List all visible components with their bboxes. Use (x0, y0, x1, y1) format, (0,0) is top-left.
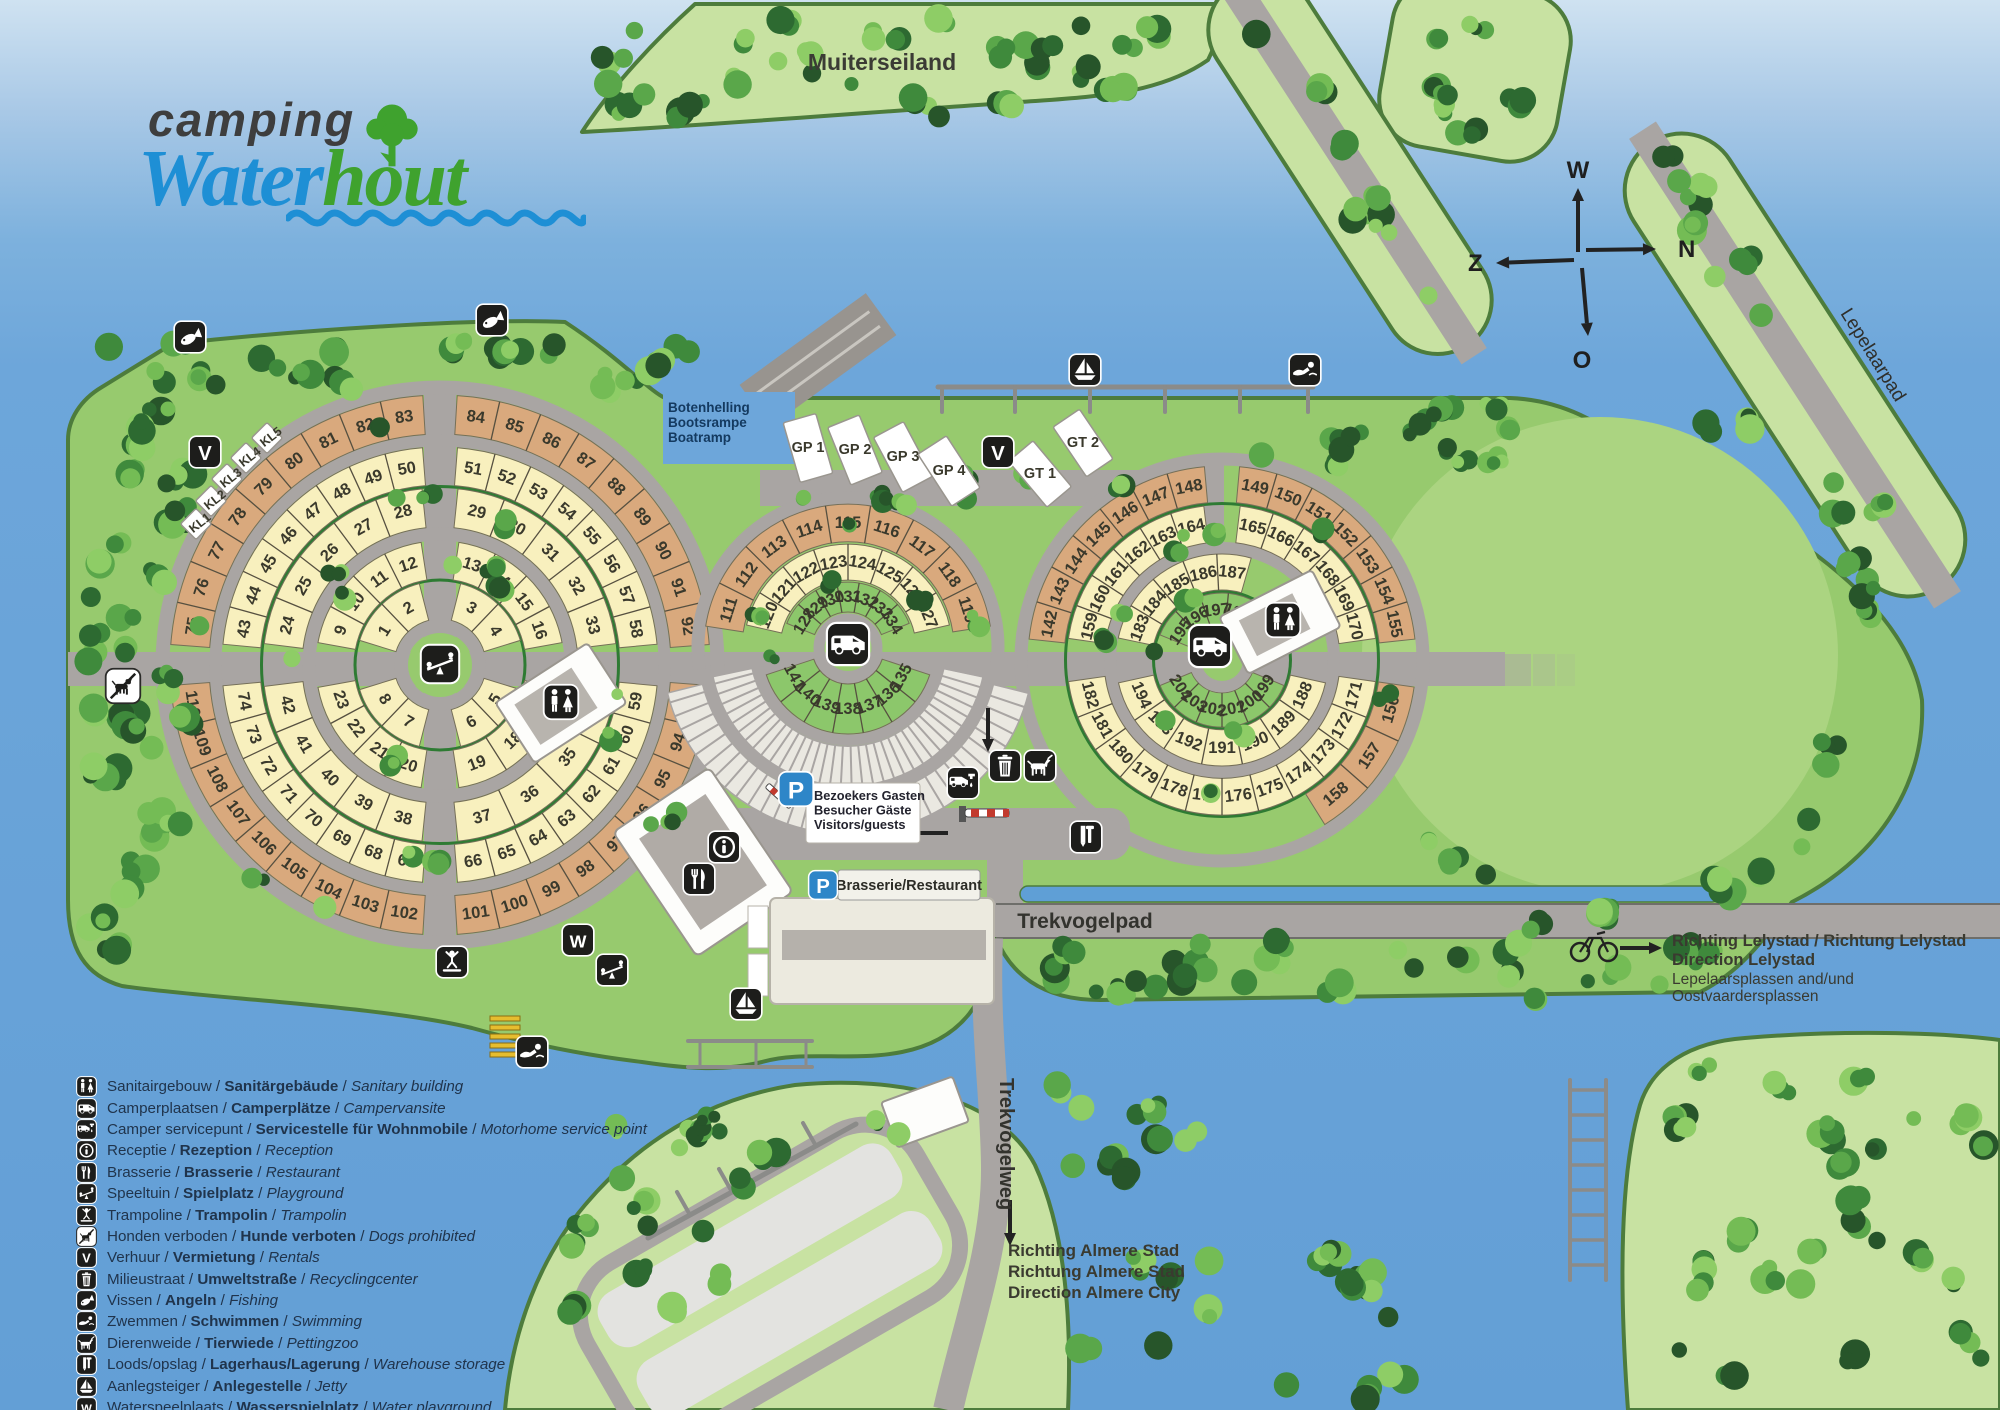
dining-icon (76, 1162, 97, 1183)
trash-icon (989, 750, 1021, 782)
brasserie-sign: Brasserie/Restaurant (836, 870, 982, 900)
svg-text:V: V (198, 442, 212, 465)
pitch-number: 43 (234, 618, 255, 639)
sailboat-icon (1069, 354, 1101, 386)
trampoline-icon (436, 946, 468, 978)
svg-text:Besucher Gäste: Besucher Gäste (814, 803, 911, 818)
svg-text:W: W (81, 1403, 92, 1410)
trampoline-icon (76, 1205, 97, 1226)
saw-icon (76, 1354, 97, 1375)
brasserie-building (748, 898, 994, 1004)
legend-item: V Verhuur / Vermietung / Rentals (76, 1247, 776, 1268)
legend-item: Zwemmen / Schwimmen / Swimming (76, 1311, 776, 1332)
label-trekvogelpad: Trekvogelpad (1017, 910, 1152, 933)
legend-item: Dierenweide / Tierwiede / Pettingzoo (76, 1333, 776, 1354)
pitch-number: 176 (1223, 785, 1252, 806)
legend-item-label: Dierenweide / Tierwiede / Pettingzoo (107, 1335, 358, 1352)
pitch-number: 187 (1217, 562, 1246, 583)
pitch-number: 51 (463, 458, 484, 479)
restroom-icon (1266, 603, 1301, 638)
svg-text:GT 1: GT 1 (1024, 466, 1056, 482)
svg-text:W: W (570, 931, 587, 951)
parking-p-icon: P (779, 772, 814, 807)
svg-text:Lepelaarsplassen and/und: Lepelaarsplassen and/und (1672, 971, 1854, 988)
dogs-prohibited-icon (106, 669, 141, 704)
legend-item: Camper servicepunt / Servicestelle für W… (76, 1119, 776, 1140)
legend-item-label: Honden verboden / Hunde verboten / Dogs … (107, 1228, 475, 1245)
pitch-number: 191 (1208, 739, 1236, 757)
camper-icon (1189, 625, 1231, 667)
legend-item-label: Trampoline / Trampolin / Trampolin (107, 1207, 347, 1224)
svg-text:Richting Almere Stad: Richting Almere Stad (1008, 1241, 1179, 1260)
svg-text:Bootsrampe: Bootsrampe (668, 415, 747, 430)
legend-item: Trampoline / Trampolin / Trampolin (76, 1204, 776, 1225)
legend-item: Aanlegsteiger / Anlegestelle / Jetty (76, 1375, 776, 1396)
svg-text:Bezoekers Gasten: Bezoekers Gasten (814, 788, 925, 803)
legend-item-label: Loods/opslag / Lagerhaus/Lagerung / Ware… (107, 1356, 505, 1373)
playground-icon (421, 645, 459, 683)
pitch-number: 58 (625, 618, 646, 639)
swimming-icon (516, 1036, 548, 1068)
water-playground-icon: W (76, 1397, 97, 1410)
legend-item: W Waterspeelplaats / Wasserspielplatz / … (76, 1397, 776, 1410)
legend-item-label: Milieustraat / Umweltstraße / Recyclingc… (107, 1271, 418, 1288)
svg-text:P: P (816, 876, 830, 898)
pitch-number: 84 (465, 407, 487, 428)
trash-icon (76, 1269, 97, 1290)
reception-icon (708, 831, 740, 863)
legend-item-label: Brasserie / Brasserie / Restaurant (107, 1164, 340, 1181)
dining-icon (683, 863, 715, 895)
legend-item: Loods/opslag / Lagerhaus/Lagerung / Ware… (76, 1354, 776, 1375)
svg-text:GP 2: GP 2 (839, 442, 872, 458)
svg-text:Richtung Almere Stad: Richtung Almere Stad (1008, 1262, 1185, 1281)
fishing-icon (174, 321, 206, 353)
map-legend: Sanitairgebouw / Sanitärgebäude / Sanita… (76, 1076, 776, 1410)
svg-text:GP 3: GP 3 (887, 449, 920, 465)
camper-icon (76, 1098, 97, 1119)
pitch-number: 59 (625, 691, 646, 712)
svg-text:GT 2: GT 2 (1067, 435, 1099, 451)
legend-item: Receptie / Rezeption / Reception (76, 1140, 776, 1161)
goat-icon (1024, 750, 1056, 782)
camper-service-icon (947, 767, 979, 799)
svg-text:Oostvaardersplassen: Oostvaardersplassen (1672, 988, 1818, 1005)
legend-item-label: Verhuur / Vermietung / Rentals (107, 1249, 320, 1266)
svg-text:Visitors/guests: Visitors/guests (814, 817, 906, 832)
svg-text:O: O (1573, 347, 1592, 374)
legend-item: Brasserie / Brasserie / Restaurant (76, 1162, 776, 1183)
rentals-v-icon: V (189, 436, 221, 468)
legend-item: Milieustraat / Umweltstraße / Recyclingc… (76, 1269, 776, 1290)
legend-item-label: Aanlegsteiger / Anlegestelle / Jetty (107, 1378, 347, 1395)
svg-text:Direction Lelystad: Direction Lelystad (1672, 951, 1815, 969)
sailboat-icon (76, 1376, 97, 1397)
swimming-icon (1289, 354, 1321, 386)
camping-map: 1234567891011121314151617181920212223242… (0, 0, 2000, 1410)
rentals-v-icon: V (982, 436, 1014, 468)
legend-item-label: Camperplaatsen / Camperplätze / Camperva… (107, 1100, 446, 1117)
svg-text:P: P (788, 777, 804, 804)
legend-item-label: Receptie / Rezeption / Reception (107, 1142, 333, 1159)
reception-icon (76, 1140, 97, 1161)
restroom-icon (544, 685, 579, 720)
legend-item: Vissen / Angeln / Fishing (76, 1290, 776, 1311)
restroom-icon (76, 1076, 97, 1097)
visitor-parking-sign: Bezoekers GastenBesucher GästeVisitors/g… (806, 783, 925, 843)
svg-text:Botenhelling: Botenhelling (668, 400, 750, 415)
sailboat-icon (730, 988, 762, 1020)
legend-item-label: Sanitairgebouw / Sanitärgebäude / Sanita… (107, 1078, 463, 1095)
playground-icon (596, 954, 628, 986)
svg-text:Boatramp: Boatramp (668, 430, 731, 445)
legend-item: Camperplaatsen / Camperplätze / Camperva… (76, 1097, 776, 1118)
svg-text:Z: Z (1468, 250, 1483, 277)
pitch-number: 50 (396, 458, 417, 479)
svg-text:Richting Lelystad / Richtung L: Richting Lelystad / Richtung Lelystad (1672, 932, 1966, 950)
svg-text:W: W (1567, 157, 1590, 184)
fishing-icon (76, 1290, 97, 1311)
svg-text:Brasserie/Restaurant: Brasserie/Restaurant (836, 878, 982, 894)
svg-text:Direction Almere City: Direction Almere City (1008, 1283, 1181, 1302)
water-playground-icon: W (562, 924, 594, 956)
swimming-icon (76, 1311, 97, 1332)
svg-text:GP 1: GP 1 (792, 440, 825, 456)
pitch-number: 66 (463, 851, 484, 872)
legend-item-label: Waterspeelplaats / Wasserspielplatz / Wa… (107, 1399, 491, 1410)
parking-p-icon: P (809, 871, 838, 900)
label-trekvogelweg: Trekvogelweg (995, 1078, 1017, 1210)
svg-text:V: V (82, 1251, 91, 1266)
playground-icon (76, 1183, 97, 1204)
legend-item-label: Camper servicepunt / Servicestelle für W… (107, 1121, 647, 1138)
legend-item: Honden verboden / Hunde verboten / Dogs … (76, 1226, 776, 1247)
svg-text:N: N (1678, 236, 1695, 263)
pitch-number: 83 (394, 407, 415, 427)
svg-text:GP 4: GP 4 (933, 463, 966, 479)
fishing-icon (476, 304, 508, 336)
legend-item: Speeltuin / Spielplatz / Playground (76, 1183, 776, 1204)
legend-item-label: Speeltuin / Spielplatz / Playground (107, 1185, 343, 1202)
legend-item-label: Vissen / Angeln / Fishing (107, 1292, 278, 1309)
rentals-v-icon: V (76, 1247, 97, 1268)
legend-item: Sanitairgebouw / Sanitärgebäude / Sanita… (76, 1076, 776, 1097)
legend-item-label: Zwemmen / Schwimmen / Swimming (107, 1313, 362, 1330)
saw-icon (1070, 821, 1102, 853)
dogs-prohibited-icon (76, 1226, 97, 1247)
camper-service-icon (76, 1119, 97, 1140)
label-muiterseiland: Muiterseiland (808, 49, 956, 75)
goat-icon (76, 1333, 97, 1354)
camper-icon (827, 623, 869, 665)
water-channel (1020, 886, 1720, 902)
svg-text:V: V (991, 442, 1005, 465)
